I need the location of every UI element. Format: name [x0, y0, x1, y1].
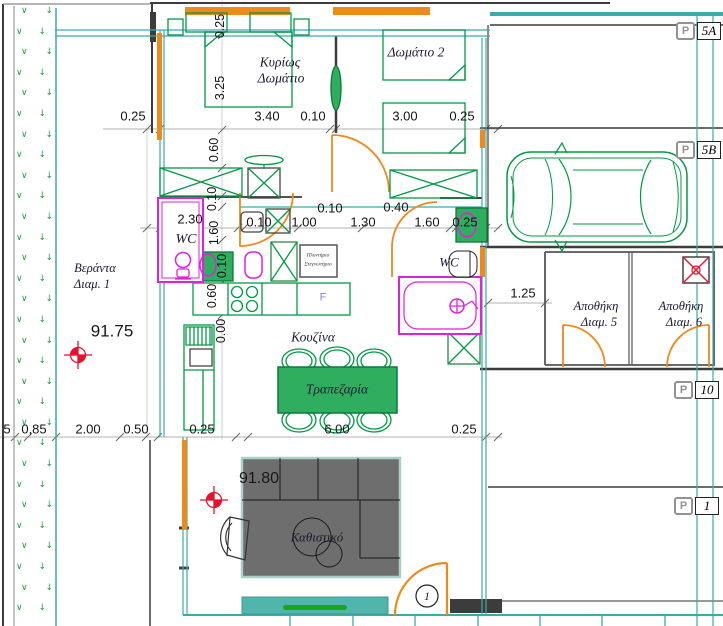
- dim-label: 0.50: [123, 423, 148, 436]
- level-value-living: 91.80: [239, 471, 279, 487]
- car-icon: [507, 143, 687, 251]
- room-label-veranda-line1: Βεράντα: [74, 262, 116, 275]
- storage6-door: [667, 325, 709, 367]
- dim-label-vertical: 3.25: [214, 76, 227, 100]
- parking-icon: P: [676, 141, 695, 159]
- dim-label-vertical: 0.60: [206, 284, 219, 308]
- room-label-living: Καθιστικό: [291, 531, 344, 544]
- dim-label: 0.25: [189, 423, 214, 436]
- kitchen-cabinets: [184, 325, 214, 430]
- storage5-door: [563, 325, 605, 367]
- dim-label: 0.10: [246, 216, 271, 229]
- bedroom2-door: [332, 135, 389, 192]
- entry-door-number: 1: [424, 590, 430, 602]
- dim-label: 5: [3, 423, 10, 436]
- room-label-storage6-line2: Διαμ. 6: [666, 316, 702, 329]
- shower-1: [271, 242, 297, 281]
- room-label-storage6-line1: Αποθήκη: [659, 300, 704, 313]
- dim-label: 1.00: [291, 216, 316, 229]
- dim-label: 0.10: [300, 110, 325, 123]
- dim-label: 0.25: [451, 423, 476, 436]
- dim-label: 0,85: [21, 423, 46, 436]
- parking-number-5b: 5B: [697, 141, 721, 159]
- parking-number-10: 10: [695, 381, 719, 399]
- level-marker-living: [200, 486, 228, 514]
- room-label-dining: Τραπεζαρία: [306, 382, 368, 396]
- parking-icon: P: [674, 381, 693, 399]
- parking-sign-1: P 1: [674, 497, 719, 515]
- shower-2: [448, 332, 480, 364]
- room-label-kitchen: Κουζίνα: [291, 330, 335, 344]
- room-label-storage5-line1: Αποθήκη: [574, 300, 619, 313]
- dim-label: 1.60: [414, 216, 439, 229]
- room-label-wc1: WC: [176, 233, 197, 247]
- dim-label: 2.00: [75, 423, 100, 436]
- bathtub: [399, 277, 481, 334]
- floor-plan: ∨↓∨↓∨↓∨↓∨↓∨↓∨↓∨↓∨↓∨↓∨↓∨↓∨↓∨↓∨↓∨↓∨↓∨↓∨↓∨↓…: [0, 0, 723, 626]
- room-label-storage5-line2: Διαμ. 5: [581, 316, 617, 329]
- dim-label: 3.00: [392, 110, 417, 123]
- dim-label: 0.25: [120, 110, 145, 123]
- dim-label-vertical: 0.10: [206, 187, 219, 211]
- floorplan-linework: [0, 0, 723, 626]
- rug: [242, 597, 388, 614]
- dim-label: 3.40: [254, 110, 279, 123]
- parking-sign-5a: P 5A: [676, 22, 721, 40]
- room-label-wc2: WC: [439, 256, 459, 269]
- dim-label: 0.25: [449, 110, 474, 123]
- parking-sign-10: P 10: [674, 381, 719, 399]
- bidet: [245, 252, 262, 278]
- laundry-label-line1: Πλυντήριο: [307, 253, 330, 260]
- fridge-label: F: [320, 293, 327, 304]
- room-label-master-line1: Κυρίως: [260, 55, 300, 69]
- parking-number-5a: 5A: [697, 22, 721, 40]
- dim-label-vertical: 1.60: [208, 221, 221, 245]
- parking-icon: P: [676, 22, 695, 40]
- dim-label-vertical: 0.10: [216, 254, 229, 278]
- level-value-veranda: 91.75: [91, 323, 134, 340]
- dim-label: 2.30: [177, 213, 202, 226]
- parking-number-1: 1: [695, 497, 719, 515]
- dim-label: 1.30: [350, 216, 375, 229]
- parking-icon: P: [674, 497, 693, 515]
- level-marker-veranda: [64, 341, 92, 369]
- dim-label-vertical: 0.00: [215, 319, 228, 343]
- dim-label-vertical: 0.60: [208, 138, 221, 162]
- dim-label: 0.10: [317, 202, 342, 215]
- dim-label: 1.25: [510, 287, 535, 300]
- dim-label: 0.25: [452, 216, 477, 229]
- planter-strip: ∨↓∨↓∨↓∨↓∨↓∨↓∨↓∨↓∨↓∨↓∨↓∨↓∨↓∨↓∨↓∨↓∨↓∨↓∨↓∨↓…: [15, 4, 56, 624]
- shaft-x: [683, 257, 709, 283]
- room-label-bedroom2: Δωμάτιο 2: [388, 45, 445, 59]
- room-label-veranda-line2: Διαμ. 1: [74, 278, 110, 291]
- room-label-master-line2: Δωμάτιο: [258, 71, 305, 85]
- parking-sign-5b: P 5B: [676, 141, 721, 159]
- dim-label: 0.40: [383, 201, 408, 214]
- laundry-label-line2: Στεγνωτήριο: [304, 262, 331, 269]
- dim-label-vertical: 0.25: [214, 14, 227, 38]
- dim-label: 6.00: [324, 423, 349, 436]
